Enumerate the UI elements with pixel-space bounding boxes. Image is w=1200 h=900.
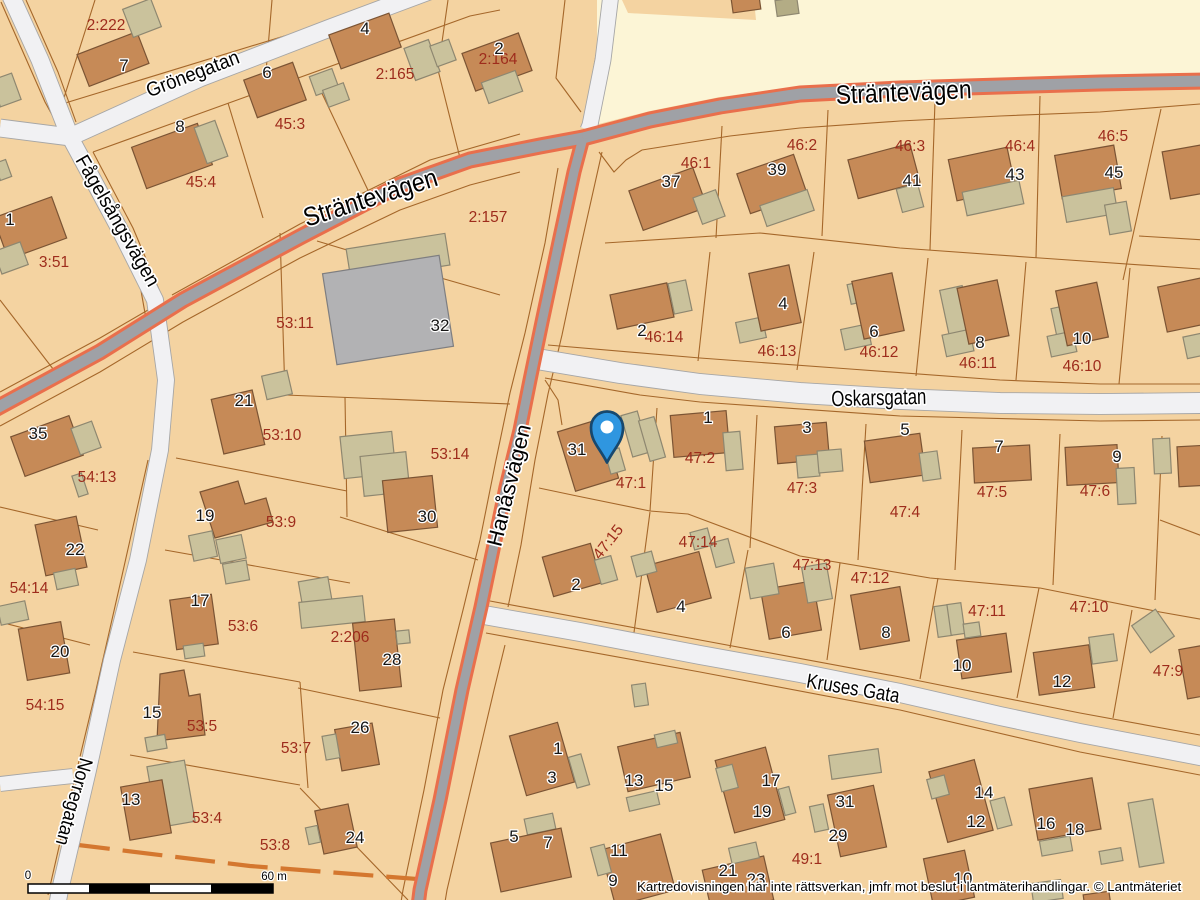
svg-text:21: 21 [719,861,738,880]
svg-text:12: 12 [1053,672,1072,691]
svg-text:2: 2 [571,575,580,594]
svg-text:47:13: 47:13 [793,557,832,574]
svg-text:1: 1 [553,739,562,758]
svg-text:47:10: 47:10 [1070,599,1109,616]
svg-text:22: 22 [66,540,85,559]
svg-text:39: 39 [768,160,787,179]
svg-text:54:13: 54:13 [78,469,117,486]
svg-text:5: 5 [900,420,909,439]
svg-text:28: 28 [383,650,402,669]
svg-text:53:10: 53:10 [263,427,302,444]
svg-text:46:1: 46:1 [681,155,711,172]
svg-text:14: 14 [975,783,994,802]
svg-text:3: 3 [547,768,556,787]
svg-text:13: 13 [122,790,141,809]
svg-text:17: 17 [762,771,781,790]
svg-text:53:4: 53:4 [192,810,223,827]
svg-text:Kartredovisningen har inte rät: Kartredovisningen har inte rättsverkan, … [637,879,1181,894]
svg-text:47:11: 47:11 [968,603,1006,620]
svg-text:21: 21 [235,391,254,410]
svg-text:45: 45 [1105,163,1124,182]
svg-text:47:9: 47:9 [1153,663,1183,680]
svg-text:30: 30 [418,507,437,526]
svg-text:10: 10 [953,656,972,675]
svg-text:54:15: 54:15 [26,697,65,714]
svg-text:7: 7 [543,833,552,852]
svg-text:46:12: 46:12 [860,344,899,361]
svg-text:53:8: 53:8 [260,837,290,854]
svg-text:35: 35 [29,424,48,443]
svg-text:5: 5 [509,827,518,846]
svg-text:Sträntevägen: Sträntevägen [835,74,972,110]
svg-text:4: 4 [360,19,369,38]
svg-text:2: 2 [637,321,646,340]
svg-text:2: 2 [494,39,503,58]
svg-text:8: 8 [975,333,984,352]
svg-text:47:1: 47:1 [616,475,646,492]
svg-text:2:157: 2:157 [469,209,508,226]
svg-text:20: 20 [51,642,70,661]
svg-text:47:6: 47:6 [1080,483,1110,500]
svg-text:3:51: 3:51 [39,254,69,271]
svg-text:24: 24 [346,828,365,847]
svg-text:46:4: 46:4 [1005,138,1036,155]
svg-text:49:1: 49:1 [792,851,822,868]
svg-text:53:11: 53:11 [276,315,314,332]
svg-text:46:14: 46:14 [645,329,684,346]
svg-text:9: 9 [608,871,617,890]
svg-text:3: 3 [802,418,811,437]
svg-text:15: 15 [143,703,162,722]
svg-text:53:5: 53:5 [187,718,217,735]
svg-text:53:14: 53:14 [431,446,470,463]
svg-text:45:3: 45:3 [275,116,305,133]
svg-text:9: 9 [1112,447,1121,466]
svg-text:16: 16 [1037,814,1056,833]
svg-text:6: 6 [869,322,878,341]
svg-text:13: 13 [625,771,644,790]
svg-text:47:5: 47:5 [977,484,1007,501]
svg-text:0: 0 [25,870,31,882]
svg-text:19: 19 [196,506,215,525]
svg-text:47:3: 47:3 [787,480,817,497]
svg-text:1: 1 [5,210,14,229]
svg-text:18: 18 [1066,820,1085,839]
svg-text:46:5: 46:5 [1098,128,1128,145]
svg-text:7: 7 [994,437,1003,456]
svg-text:47:14: 47:14 [679,534,718,551]
svg-text:17: 17 [191,591,210,610]
svg-text:Oskarsgatan: Oskarsgatan [831,384,927,411]
svg-text:46:13: 46:13 [758,343,797,360]
svg-text:31: 31 [568,440,587,459]
svg-text:46:3: 46:3 [895,138,925,155]
svg-text:19: 19 [753,802,772,821]
svg-text:47:4: 47:4 [890,504,921,521]
svg-text:10: 10 [1073,329,1092,348]
svg-text:47:2: 47:2 [685,450,715,467]
svg-text:8: 8 [175,117,184,136]
svg-text:31: 31 [836,792,855,811]
svg-text:4: 4 [676,597,685,616]
svg-text:7: 7 [119,56,128,75]
svg-text:41: 41 [903,171,922,190]
svg-text:26: 26 [351,718,370,737]
svg-text:6: 6 [262,63,271,82]
svg-text:12: 12 [967,812,986,831]
svg-text:1: 1 [703,408,712,427]
svg-text:54:14: 54:14 [10,580,49,597]
svg-text:43: 43 [1006,165,1025,184]
svg-text:47:12: 47:12 [851,570,890,587]
svg-text:32: 32 [431,316,450,335]
svg-text:29: 29 [829,826,848,845]
svg-text:45:4: 45:4 [186,174,217,191]
svg-text:15: 15 [655,776,674,795]
svg-text:2:222: 2:222 [87,17,126,34]
svg-text:53:9: 53:9 [266,514,296,531]
svg-text:6: 6 [781,623,790,642]
svg-text:46:11: 46:11 [959,355,997,372]
svg-text:46:10: 46:10 [1063,358,1102,375]
svg-text:4: 4 [778,294,787,313]
svg-text:11: 11 [610,841,628,860]
svg-text:60 m: 60 m [261,871,287,883]
svg-text:37: 37 [662,172,681,191]
svg-text:53:6: 53:6 [228,618,258,635]
svg-text:2:206: 2:206 [331,629,370,646]
svg-text:46:2: 46:2 [787,137,817,154]
svg-text:53:7: 53:7 [281,740,311,757]
svg-text:8: 8 [881,623,890,642]
svg-text:2:165: 2:165 [376,66,415,83]
